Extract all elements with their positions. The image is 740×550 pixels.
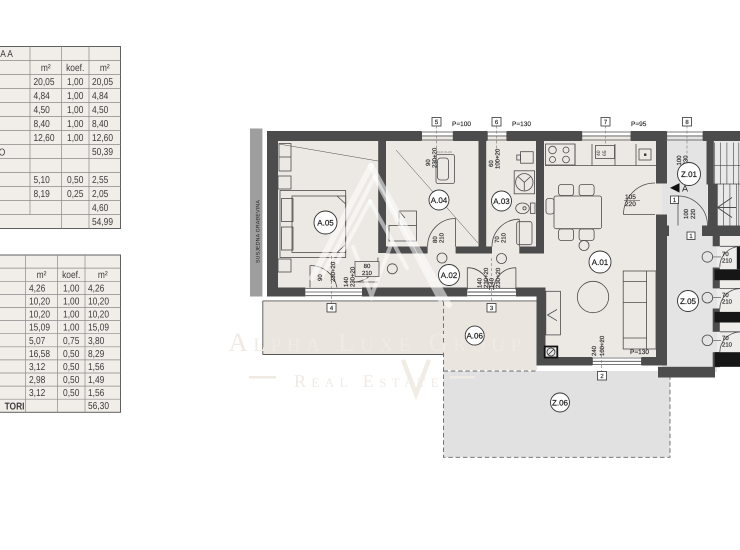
- svg-text:ETAŽA A: ETAŽA A: [0, 48, 13, 60]
- svg-text:2,05: 2,05: [92, 189, 109, 200]
- svg-text:50,39: 50,39: [92, 147, 113, 158]
- svg-text:1,00: 1,00: [63, 283, 80, 294]
- svg-text:koef.: koef.: [66, 63, 84, 74]
- svg-text:230+20: 230+20: [330, 261, 337, 282]
- svg-text:15,09: 15,09: [29, 323, 50, 334]
- svg-text:m²: m²: [98, 270, 108, 281]
- svg-text:0,50: 0,50: [63, 349, 80, 360]
- svg-text:4,50: 4,50: [34, 105, 51, 116]
- svg-text:140: 140: [489, 277, 496, 288]
- svg-text:230+20: 230+20: [495, 267, 502, 288]
- svg-text:m²: m²: [100, 63, 110, 74]
- svg-text:60: 60: [488, 160, 495, 167]
- svg-text:70: 70: [722, 335, 729, 342]
- svg-text:8,40: 8,40: [92, 119, 109, 130]
- svg-text:10,20: 10,20: [88, 310, 109, 321]
- svg-text:20,05: 20,05: [92, 77, 113, 88]
- svg-text:4,26: 4,26: [29, 283, 46, 294]
- svg-text:0,50: 0,50: [63, 388, 80, 399]
- svg-text:12,60: 12,60: [34, 133, 55, 144]
- svg-text:8,19: 8,19: [34, 189, 51, 200]
- svg-text:210: 210: [439, 232, 446, 243]
- svg-text:A.02: A.02: [441, 271, 458, 280]
- svg-text:80: 80: [432, 236, 439, 243]
- svg-text:A.05: A.05: [317, 218, 334, 227]
- svg-text:1,56: 1,56: [88, 388, 105, 399]
- svg-text:A.03: A.03: [493, 197, 510, 206]
- svg-text:SUSJEDNA GRAĐEVINA: SUSJEDNA GRAĐEVINA: [256, 200, 262, 263]
- svg-text:100: 100: [676, 155, 683, 166]
- svg-text:1,56: 1,56: [88, 362, 105, 373]
- svg-text:0,50: 0,50: [63, 375, 80, 386]
- svg-text:90: 90: [317, 274, 324, 281]
- svg-text:0,50: 0,50: [67, 175, 84, 186]
- svg-text:15,09: 15,09: [88, 323, 109, 334]
- svg-text:230+20: 230+20: [432, 147, 439, 168]
- svg-text:70: 70: [722, 251, 729, 258]
- svg-text:16,58: 16,58: [29, 349, 50, 360]
- svg-text:10,20: 10,20: [29, 310, 50, 321]
- svg-text:56,30: 56,30: [88, 401, 109, 412]
- svg-text:2,98: 2,98: [29, 375, 46, 386]
- svg-text:210: 210: [362, 270, 373, 277]
- svg-text:90: 90: [425, 159, 432, 166]
- svg-text:1,00: 1,00: [67, 133, 84, 144]
- svg-text:100+20: 100+20: [495, 148, 502, 169]
- svg-text:3,80: 3,80: [88, 336, 105, 347]
- svg-text:KLIK KLAK: KLIK KLAK: [437, 150, 452, 154]
- svg-text:210: 210: [722, 299, 733, 306]
- svg-text:10,20: 10,20: [88, 297, 109, 308]
- svg-text:P=95: P=95: [631, 121, 647, 128]
- svg-text:1,00: 1,00: [63, 323, 80, 334]
- svg-text:210: 210: [722, 342, 733, 349]
- svg-text:8,40: 8,40: [34, 119, 51, 130]
- svg-text:m²: m²: [41, 63, 51, 74]
- svg-text:140: 140: [343, 276, 350, 287]
- svg-text:12,60: 12,60: [92, 133, 113, 144]
- svg-text:3,12: 3,12: [29, 362, 46, 373]
- svg-text:0,50: 0,50: [63, 362, 80, 373]
- svg-text:4,84: 4,84: [34, 91, 51, 102]
- svg-text:4,50: 4,50: [92, 105, 109, 116]
- svg-text:5,10: 5,10: [34, 175, 51, 186]
- svg-text:240: 240: [591, 345, 598, 356]
- svg-text:70: 70: [722, 292, 729, 299]
- svg-text:105: 105: [625, 194, 636, 201]
- svg-text:4,26: 4,26: [88, 283, 105, 294]
- svg-text:Z.06: Z.06: [552, 398, 569, 407]
- svg-text:P=130: P=130: [630, 349, 649, 356]
- svg-text:8,29: 8,29: [88, 349, 105, 360]
- svg-text:NO: NO: [0, 148, 5, 159]
- svg-text:5,07: 5,07: [29, 336, 46, 347]
- svg-text:0,75: 0,75: [63, 336, 80, 347]
- svg-text:4,60: 4,60: [92, 203, 109, 214]
- svg-text:Z.05: Z.05: [680, 297, 697, 306]
- svg-text:2,55: 2,55: [92, 175, 109, 186]
- svg-text:220: 220: [690, 208, 697, 219]
- svg-text:220: 220: [625, 201, 636, 208]
- svg-text:65: 65: [602, 150, 608, 156]
- svg-text:m²: m²: [37, 270, 47, 281]
- svg-text:1,00: 1,00: [63, 297, 80, 308]
- svg-text:140: 140: [477, 277, 484, 288]
- svg-text:20,05: 20,05: [34, 77, 55, 88]
- svg-text:1,00: 1,00: [63, 310, 80, 321]
- svg-text:1,00: 1,00: [67, 91, 84, 102]
- svg-text:0,25: 0,25: [67, 189, 84, 200]
- svg-text:koef.: koef.: [62, 270, 80, 281]
- svg-text:P=130: P=130: [512, 121, 531, 128]
- svg-text:4,84: 4,84: [92, 91, 109, 102]
- svg-text:P=100: P=100: [452, 121, 471, 128]
- svg-text:80: 80: [364, 263, 371, 270]
- svg-text:TORI: TORI: [5, 401, 25, 412]
- svg-text:A.01: A.01: [592, 258, 609, 267]
- svg-text:Z.01: Z.01: [681, 170, 698, 179]
- svg-text:100+20: 100+20: [599, 335, 606, 356]
- svg-text:A.06: A.06: [466, 331, 483, 340]
- svg-text:3,12: 3,12: [29, 388, 46, 399]
- svg-text:1,00: 1,00: [67, 105, 84, 116]
- svg-text:210: 210: [501, 232, 508, 243]
- svg-text:1,00: 1,00: [67, 77, 84, 88]
- svg-text:54,99: 54,99: [92, 217, 113, 228]
- svg-text:A.04: A.04: [431, 196, 448, 205]
- svg-text:210: 210: [722, 258, 733, 265]
- svg-text:1,00: 1,00: [67, 119, 84, 130]
- svg-text:1,49: 1,49: [88, 375, 105, 386]
- svg-text:10,20: 10,20: [29, 297, 50, 308]
- svg-text:70: 70: [494, 236, 501, 243]
- svg-text:100: 100: [683, 208, 690, 219]
